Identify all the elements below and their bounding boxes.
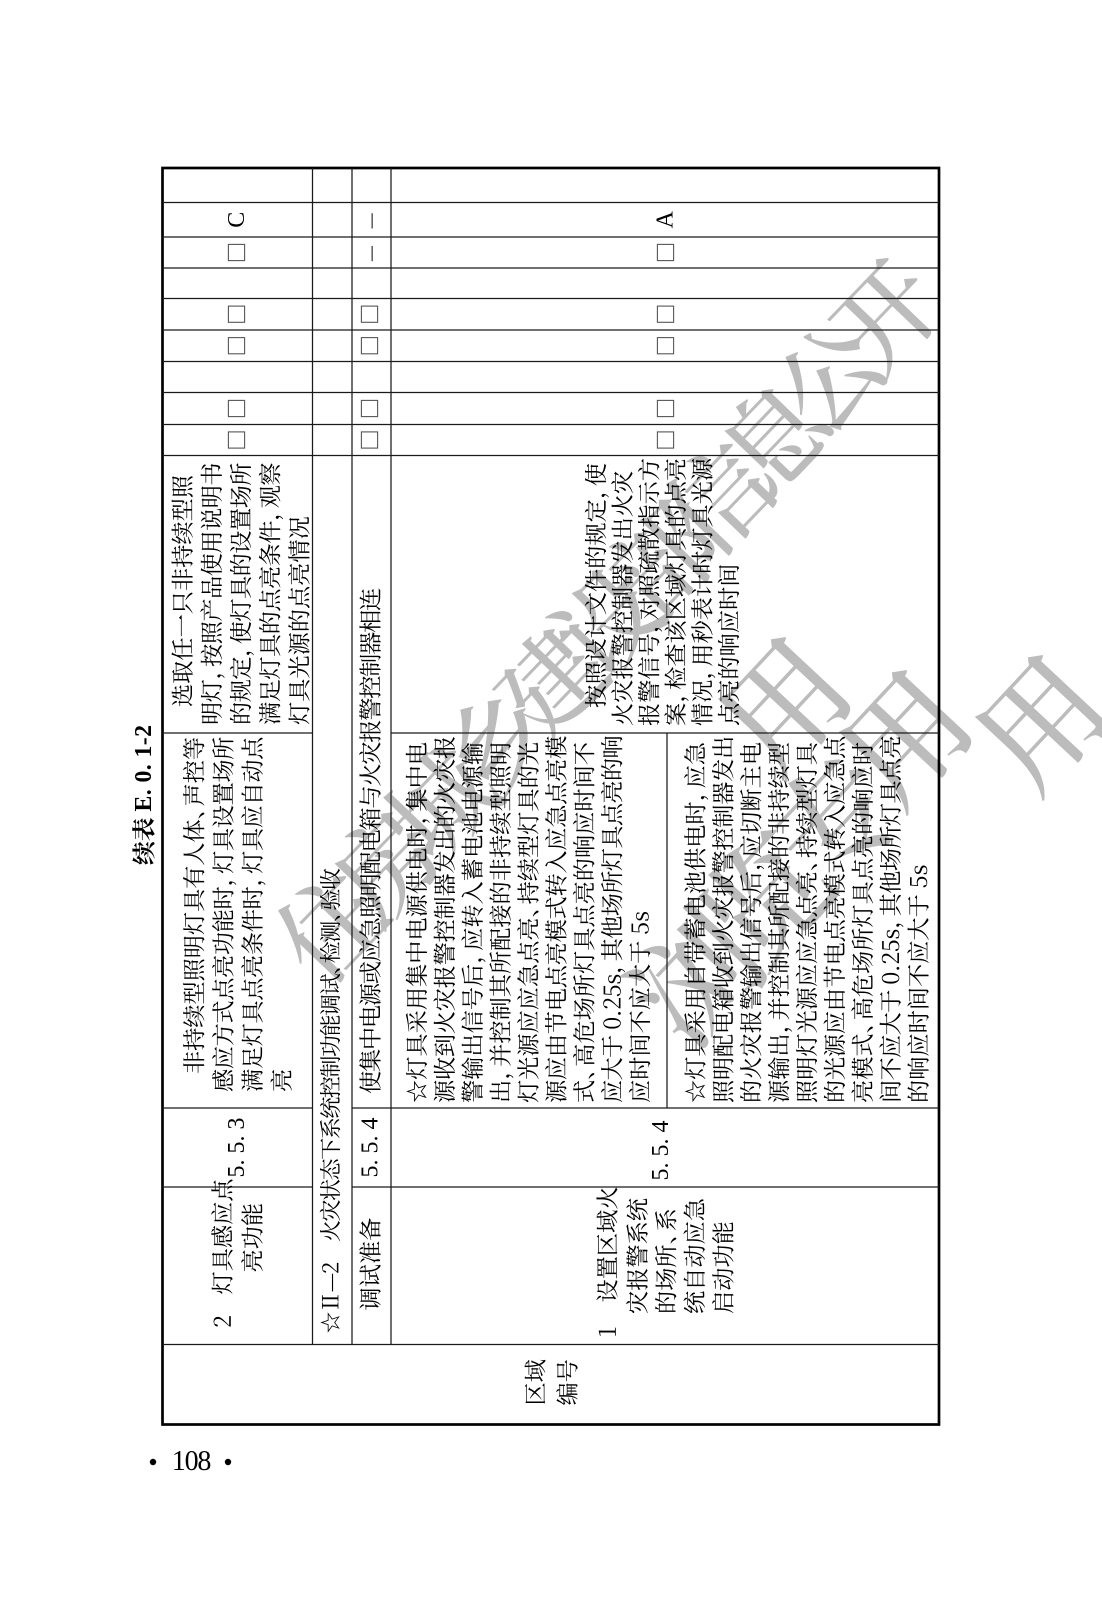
svg-text:C: C [224, 212, 250, 228]
svg-text:5. 5. 3: 5. 5. 3 [224, 1118, 250, 1178]
svg-text:108: 108 [172, 1446, 211, 1477]
svg-text:A: A [652, 210, 678, 228]
svg-text:5. 5. 4: 5. 5. 4 [648, 1121, 674, 1181]
svg-text:5. 5. 4: 5. 5. 4 [357, 1118, 383, 1178]
svg-text:E. 0. 1-2: E. 0. 1-2 [131, 725, 157, 812]
